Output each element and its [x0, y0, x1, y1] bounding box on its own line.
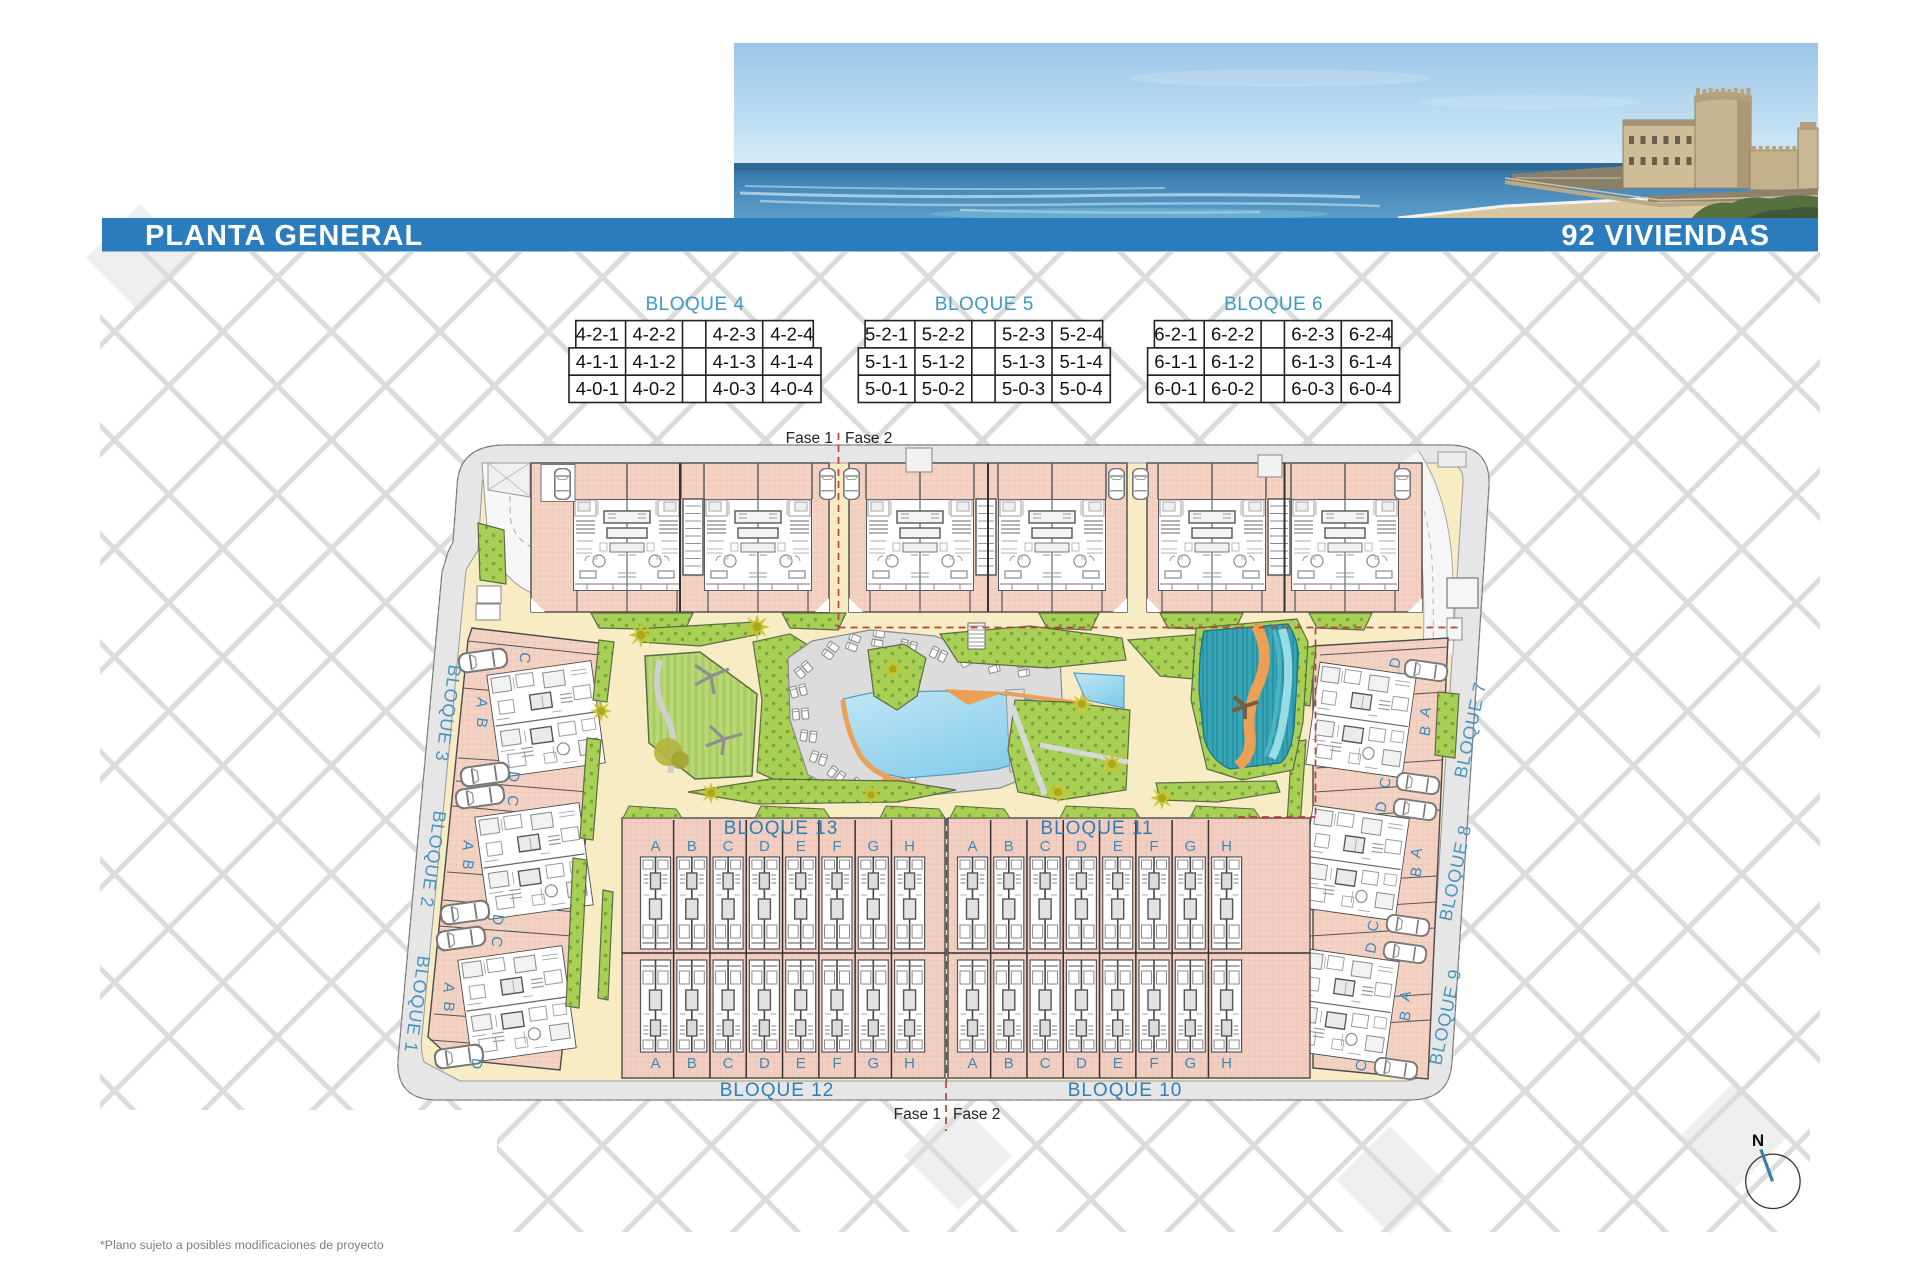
svg-text:5-0-3: 5-0-3	[1002, 378, 1045, 399]
svg-text:5-2-1: 5-2-1	[865, 324, 908, 345]
svg-text:G: G	[867, 838, 879, 855]
svg-text:H: H	[1221, 838, 1232, 855]
svg-text:5-2-3: 5-2-3	[1002, 324, 1045, 345]
svg-text:6-1-3: 6-1-3	[1291, 351, 1334, 372]
svg-text:4-2-4: 4-2-4	[770, 324, 813, 345]
svg-text:*Plano sujeto a posibles modif: *Plano sujeto a posibles modificaciones …	[100, 1238, 384, 1252]
svg-text:E: E	[1113, 838, 1123, 855]
svg-text:5-1-4: 5-1-4	[1060, 351, 1103, 372]
svg-text:4-0-3: 4-0-3	[713, 378, 756, 399]
svg-text:92 VIVIENDAS: 92 VIVIENDAS	[1561, 220, 1770, 252]
svg-text:E: E	[1113, 1055, 1123, 1072]
svg-text:A: A	[967, 838, 977, 855]
svg-text:H: H	[904, 1055, 915, 1072]
svg-text:H: H	[904, 838, 915, 855]
svg-text:4-0-4: 4-0-4	[770, 378, 813, 399]
svg-text:5-2-2: 5-2-2	[922, 324, 965, 345]
svg-text:D: D	[1076, 838, 1087, 855]
svg-text:4-2-2: 4-2-2	[632, 324, 675, 345]
svg-text:BLOQUE 13: BLOQUE 13	[724, 818, 839, 839]
svg-text:BLOQUE 5: BLOQUE 5	[935, 294, 1034, 315]
svg-text:C: C	[723, 1055, 734, 1072]
svg-text:F: F	[1149, 838, 1158, 855]
svg-text:Fase 1: Fase 1	[786, 430, 833, 447]
svg-text:4-1-3: 4-1-3	[713, 351, 756, 372]
svg-text:6-1-1: 6-1-1	[1154, 351, 1197, 372]
svg-text:6-2-3: 6-2-3	[1291, 324, 1334, 345]
svg-text:C: C	[1040, 838, 1051, 855]
svg-text:4-2-3: 4-2-3	[713, 324, 756, 345]
svg-text:F: F	[832, 1055, 841, 1072]
svg-text:6-0-1: 6-0-1	[1154, 378, 1197, 399]
svg-text:BLOQUE 4: BLOQUE 4	[645, 294, 744, 315]
svg-text:5-0-1: 5-0-1	[865, 378, 908, 399]
svg-text:4-1-1: 4-1-1	[576, 351, 619, 372]
svg-text:6-0-3: 6-0-3	[1291, 378, 1334, 399]
svg-text:Fase 2: Fase 2	[845, 430, 892, 447]
svg-text:PLANTA GENERAL: PLANTA GENERAL	[145, 220, 423, 252]
svg-text:G: G	[1184, 838, 1196, 855]
svg-text:B: B	[1004, 838, 1014, 855]
svg-text:A: A	[650, 838, 660, 855]
svg-text:5-0-2: 5-0-2	[922, 378, 965, 399]
svg-text:5-1-1: 5-1-1	[865, 351, 908, 372]
svg-text:6-1-2: 6-1-2	[1211, 351, 1254, 372]
svg-text:4-1-2: 4-1-2	[632, 351, 675, 372]
svg-text:BLOQUE 10: BLOQUE 10	[1068, 1080, 1183, 1101]
svg-text:4-0-2: 4-0-2	[632, 378, 675, 399]
svg-text:C: C	[1040, 1055, 1051, 1072]
svg-text:5-0-4: 5-0-4	[1060, 378, 1103, 399]
svg-text:H: H	[1221, 1055, 1232, 1072]
svg-text:6-0-4: 6-0-4	[1349, 378, 1392, 399]
svg-text:BLOQUE 6: BLOQUE 6	[1224, 294, 1323, 315]
svg-text:B: B	[687, 838, 697, 855]
svg-text:6-1-4: 6-1-4	[1349, 351, 1392, 372]
svg-text:5-2-4: 5-2-4	[1060, 324, 1103, 345]
svg-text:B: B	[687, 1055, 697, 1072]
svg-text:G: G	[867, 1055, 879, 1072]
svg-text:A: A	[650, 1055, 660, 1072]
svg-text:5-1-3: 5-1-3	[1002, 351, 1045, 372]
svg-text:5-1-2: 5-1-2	[922, 351, 965, 372]
svg-text:G: G	[1184, 1055, 1196, 1072]
svg-text:6-2-4: 6-2-4	[1349, 324, 1392, 345]
svg-text:Fase 2: Fase 2	[953, 1106, 1000, 1123]
svg-text:D: D	[759, 838, 770, 855]
svg-text:6-0-2: 6-0-2	[1211, 378, 1254, 399]
svg-text:A: A	[967, 1055, 977, 1072]
svg-text:4-1-4: 4-1-4	[770, 351, 813, 372]
svg-text:6-2-2: 6-2-2	[1211, 324, 1254, 345]
svg-text:4-0-1: 4-0-1	[576, 378, 619, 399]
svg-text:F: F	[832, 838, 841, 855]
svg-text:BLOQUE 12: BLOQUE 12	[720, 1080, 835, 1101]
svg-text:N: N	[1752, 1131, 1764, 1150]
svg-text:E: E	[796, 1055, 806, 1072]
svg-text:D: D	[759, 1055, 770, 1072]
svg-text:4-2-1: 4-2-1	[576, 324, 619, 345]
svg-text:D: D	[1076, 1055, 1087, 1072]
svg-text:Fase 1: Fase 1	[894, 1106, 941, 1123]
svg-text:6-2-1: 6-2-1	[1154, 324, 1197, 345]
svg-text:BLOQUE 11: BLOQUE 11	[1040, 818, 1153, 839]
svg-text:B: B	[1004, 1055, 1014, 1072]
svg-text:F: F	[1149, 1055, 1158, 1072]
svg-text:C: C	[723, 838, 734, 855]
svg-text:E: E	[796, 838, 806, 855]
